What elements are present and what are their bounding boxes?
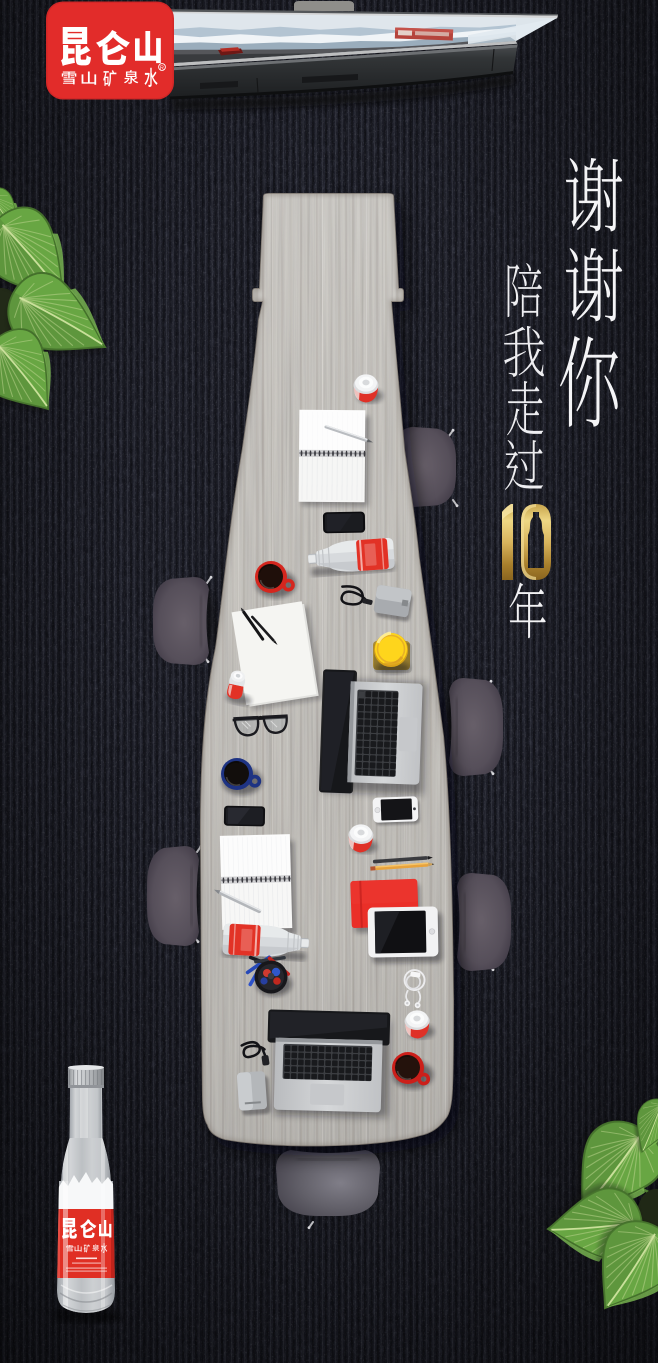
- svg-text:R: R: [160, 65, 164, 71]
